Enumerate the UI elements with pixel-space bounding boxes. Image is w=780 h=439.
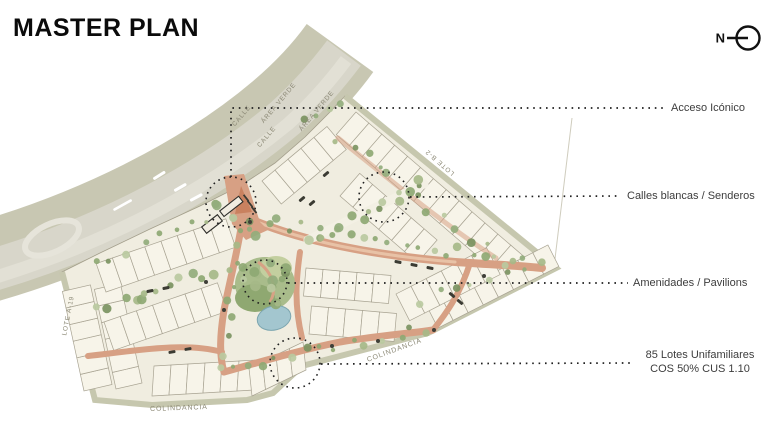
callout-amenidades: Amenidades / Pavilions [633,276,747,290]
master-plan-slide: CALLE ÁREA VERDE CALLE ÁREA VERDE LOTE B… [0,0,780,439]
north-label: N [716,31,725,46]
north-arrow: N [706,16,770,62]
label-colindancia-bottom: COLINDANCIA [150,404,208,413]
callout-lotes-line1: 85 Lotes Unifamiliares [637,348,763,362]
callout-calles-blancas: Calles blancas / Senderos [627,189,755,203]
callout-lotes-line2: COS 50% CUS 1.10 [637,362,763,376]
page-title: MASTER PLAN [13,14,199,43]
callout-lotes: 85 Lotes Unifamiliares COS 50% CUS 1.10 [637,348,763,376]
callout-acceso-iconico: Acceso Icónico [671,101,745,115]
boundary-extension-line [554,118,572,267]
